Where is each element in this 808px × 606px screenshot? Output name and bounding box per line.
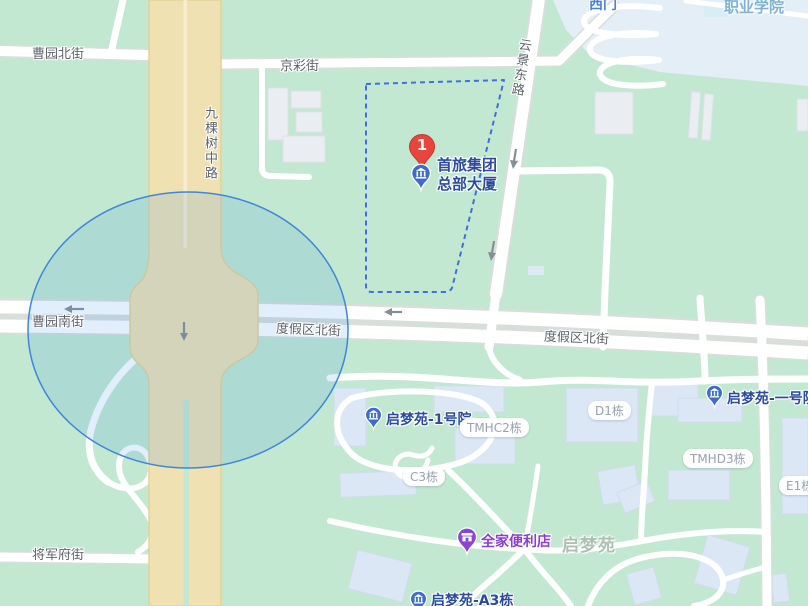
area-label-vocational-college: 职业学院 <box>724 0 784 17</box>
street-label-caoyuan-north: 曹园北街 <box>32 43 84 62</box>
street-label-jiukeshu: 九棵树中路 <box>200 106 219 181</box>
street-label-caoyuan-south: 曹园南街 <box>32 311 84 330</box>
poi-label-familymart[interactable]: 全家便利店 <box>481 533 551 551</box>
poi-label-qimengyuan-a3[interactable]: 启梦苑-A3栋 <box>431 592 513 606</box>
qimengyuan-yihao-poi-icon[interactable] <box>705 384 724 414</box>
shoulv-building-poi-icon[interactable] <box>410 163 432 197</box>
street-label-dujiaqu-north-east: 度假区北街 <box>544 326 610 348</box>
gate-label-west-gate: 西门 <box>589 0 617 14</box>
poi-label-shoulv-line2[interactable]: 总部大厦 <box>437 175 497 193</box>
building-badge-tmhd3[interactable]: TMHD3栋 <box>683 449 753 468</box>
building-icon <box>410 163 432 193</box>
map-canvas[interactable]: 曹园北街 京彩街 九棵树中路 云景东路 曹园南街 度假区北街 度假区北街 将军府… <box>0 0 808 606</box>
street-label-dujiaqu-north-west: 度假区北街 <box>276 318 342 340</box>
qimengyuan1-poi-icon[interactable] <box>364 406 383 436</box>
store-icon <box>461 533 472 541</box>
building-badge-tmhc2[interactable]: TMHC2栋 <box>460 418 529 437</box>
building-badge-c3[interactable]: C3栋 <box>403 467 445 486</box>
map-base-layers <box>0 0 808 606</box>
area-label-qimengyuan: 启梦苑 <box>562 531 616 556</box>
building-badge-d1[interactable]: D1栋 <box>588 401 631 420</box>
building-badge-e1[interactable]: E1栋 <box>779 476 808 495</box>
street-label-jiangjunfu: 将军府街 <box>32 544 84 563</box>
poi-label-shoulv-line1[interactable]: 首旅集团 <box>437 156 497 174</box>
familymart-poi-icon[interactable] <box>456 527 478 561</box>
qimengyuan-a3-poi-icon[interactable] <box>409 590 428 606</box>
poi-label-qimengyuan-yihao[interactable]: 启梦苑-一号院 <box>727 390 808 408</box>
street-label-jingcai: 京彩街 <box>280 55 319 74</box>
poi-label-qimengyuan-1[interactable]: 启梦苑-1号院 <box>386 411 472 429</box>
marker-number: 1 <box>408 137 436 154</box>
